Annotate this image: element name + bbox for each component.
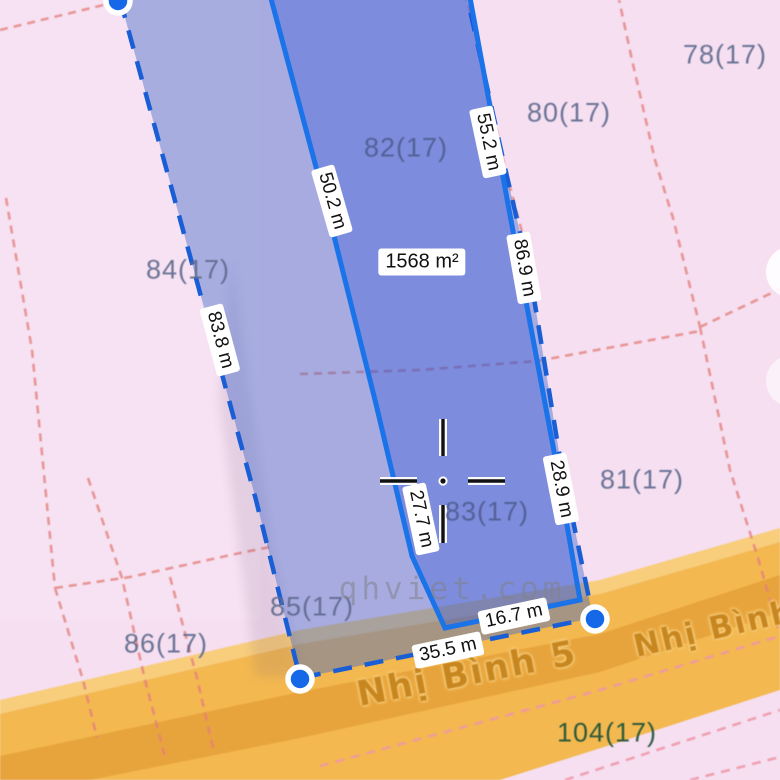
- map-control-button-partial[interactable]: [766, 246, 780, 298]
- map-canvas[interactable]: 78(17) 80(17) 82(17) 84(17) 81(17) 83(17…: [0, 0, 780, 780]
- map-control-button-partial[interactable]: [766, 355, 780, 407]
- vertex-handle[interactable]: [583, 607, 607, 631]
- vertex-handle[interactable]: [288, 667, 312, 691]
- selection-overlay-layer: [0, 0, 780, 780]
- vertex-handle[interactable]: [106, 0, 130, 13]
